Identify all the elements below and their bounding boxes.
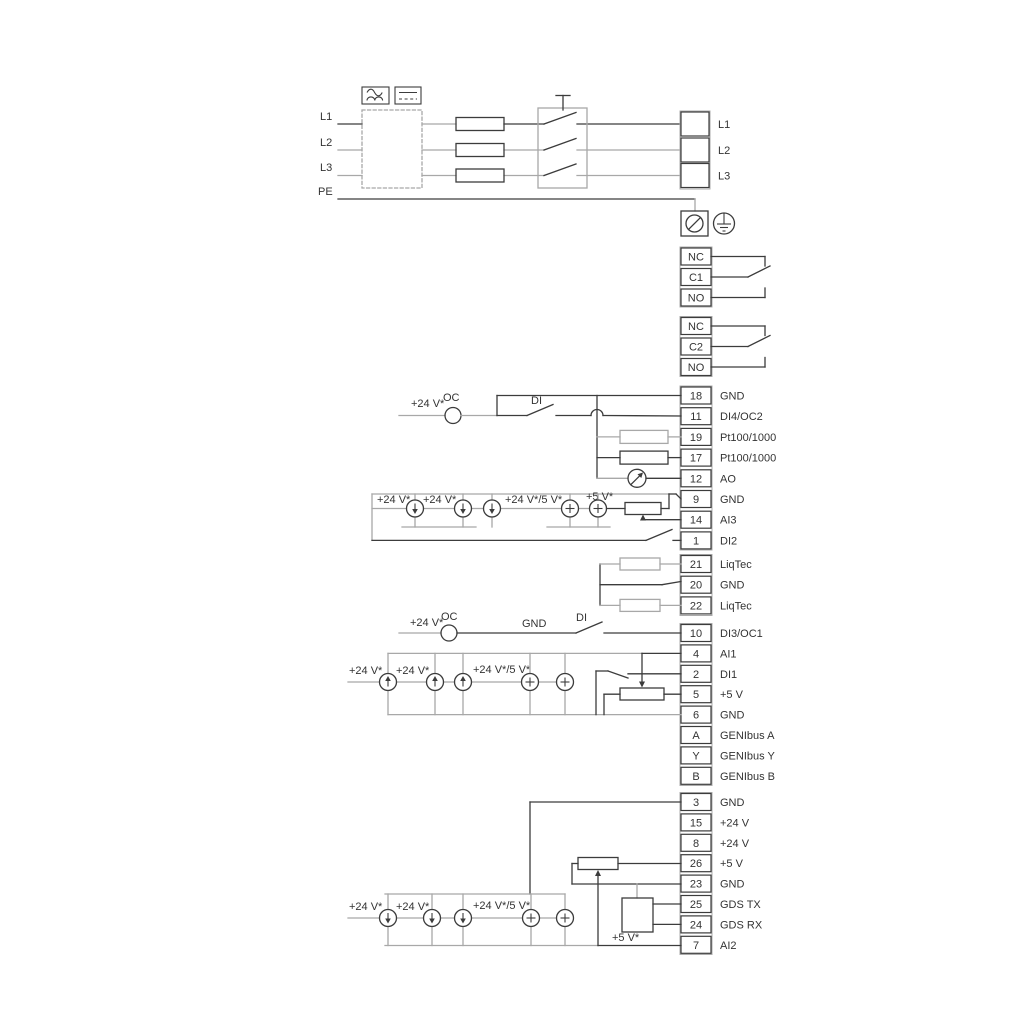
terminal-number: 5 xyxy=(693,689,699,701)
terminal-number: 14 xyxy=(690,515,702,527)
plus24or5-label: +24 V*/5 V* xyxy=(505,494,563,506)
terminal-label: AI3 xyxy=(720,515,737,527)
ai3-option-wiring: +24 V* +24 V* +24 V*/5 V* +5 V* xyxy=(372,491,681,540)
fuse-icon-l2 xyxy=(456,144,504,157)
analog-output-meter-icon xyxy=(597,469,681,487)
plus24-label: +24 V* xyxy=(410,617,444,629)
terminal-label: DI2 xyxy=(720,535,737,547)
relay1-nc: NC xyxy=(688,252,704,264)
relay2-c2: C2 xyxy=(689,342,703,354)
ai1-potentiometer-icon xyxy=(604,653,681,714)
terminal-number: 4 xyxy=(693,648,699,660)
current-source-icon xyxy=(455,894,472,946)
liqtec-sensor-icon xyxy=(600,599,681,611)
power-terminal-block: L1 L2 L3 xyxy=(680,111,730,189)
terminal-strip-io1: 18 11 19 17 12 9 14 1 GND DI4/OC2 Pt100/… xyxy=(680,386,776,550)
terminal-label: +24 V xyxy=(720,838,750,850)
relay1-c1: C1 xyxy=(689,272,703,284)
terminal-number: 8 xyxy=(693,838,699,850)
pt100-sensor-icon-19 xyxy=(597,430,681,443)
screw-terminal-icon xyxy=(681,211,708,236)
terminal-number: 2 xyxy=(693,669,699,681)
voltage-source-icon xyxy=(562,494,579,527)
terminal-strip-liqtec: 21 20 22 LiqTec GND LiqTec xyxy=(680,555,752,616)
plus24-label: +24 V* xyxy=(411,398,445,410)
oc-output-icon xyxy=(441,625,457,641)
terminal-number: 3 xyxy=(693,797,699,809)
voltage-source-icon xyxy=(557,894,574,946)
oc-label: OC xyxy=(441,611,458,623)
terminal-number: 18 xyxy=(690,391,702,403)
output-label-l2: L2 xyxy=(718,145,730,157)
plus24-label: +24 V* xyxy=(377,494,411,506)
terminal-strip-io2: 10 4 2 5 6 A Y B DI3/OC1 AI1 DI1 +5 V GN… xyxy=(680,624,775,786)
terminal-number: 7 xyxy=(693,940,699,952)
plus24-label: +24 V* xyxy=(349,665,383,677)
liqtec-sensor-wiring xyxy=(600,558,681,611)
terminal-number: 12 xyxy=(690,473,702,485)
terminal-number: 9 xyxy=(693,494,699,506)
di2-switch-icon xyxy=(372,530,681,541)
earth-ground-icon xyxy=(714,213,735,234)
converter-box xyxy=(362,110,422,188)
di-label: DI xyxy=(531,395,542,407)
terminal-label: +5 V xyxy=(720,689,744,701)
ac-symbol-icon xyxy=(362,87,389,104)
terminal-number: 1 xyxy=(693,535,699,547)
plus24-label: +24 V* xyxy=(396,901,430,913)
plus24-label: +24 V* xyxy=(349,901,383,913)
terminal-label: GND xyxy=(720,391,745,403)
current-source-icon xyxy=(455,653,472,714)
terminal-number: 24 xyxy=(690,919,702,931)
terminal-label: DI1 xyxy=(720,669,737,681)
wiring-diagram-canvas: L1 L2 L3 PE xyxy=(0,0,1024,1024)
voltage-source-icon xyxy=(557,653,574,714)
strip1-wiring: +24 V* OC DI xyxy=(399,392,681,487)
relay1-no: NO xyxy=(688,293,705,305)
terminal-label: GENIbus B xyxy=(720,771,775,783)
current-source-icon xyxy=(427,653,444,714)
terminal-number: 19 xyxy=(690,432,702,444)
terminal-label: GND xyxy=(720,494,745,506)
relay-2-contact-icon xyxy=(711,326,770,367)
terminal-label: GND xyxy=(720,580,745,592)
terminal-label: LiqTec xyxy=(720,559,752,571)
relay-2-block: NC C2 NO xyxy=(680,317,770,377)
dc-symbol-icon xyxy=(395,87,421,104)
terminal-label: +5 V xyxy=(720,858,744,870)
voltage-source-icon xyxy=(522,653,539,714)
plus24or5-label: +24 V*/5 V* xyxy=(473,900,531,912)
wiring-diagram: L1 L2 L3 PE xyxy=(0,0,1024,1024)
plus24or5-label: +24 V*/5 V* xyxy=(473,664,531,676)
liqtec-sensor-icon xyxy=(600,558,681,570)
terminal-label: GND xyxy=(720,797,745,809)
input-label-pe: PE xyxy=(318,186,333,198)
terminal-label: GENIbus Y xyxy=(720,750,775,762)
terminal-label: DI3/OC1 xyxy=(720,628,763,640)
terminal-label: GENIbus A xyxy=(720,730,775,742)
input-label-l1: L1 xyxy=(320,111,332,123)
input-label-l2: L2 xyxy=(320,137,332,149)
current-source-icon xyxy=(455,494,472,527)
terminal-number: 22 xyxy=(690,600,702,612)
terminal-label: Pt100/1000 xyxy=(720,432,776,444)
di1-switch-icon xyxy=(596,671,681,715)
terminal-number: 21 xyxy=(690,559,702,571)
ai3-potentiometer-icon xyxy=(625,494,681,521)
oc-label: OC xyxy=(443,392,460,404)
fuse-icon-l3 xyxy=(456,169,504,182)
terminal-label: DI4/OC2 xyxy=(720,411,763,423)
terminal-number: 17 xyxy=(690,453,702,465)
terminal-number: A xyxy=(692,730,700,742)
di3-wiring: +24 V* OC GND DI xyxy=(399,611,681,641)
relay-1-contact-icon xyxy=(711,257,770,298)
ai2-option-wiring: +24 V* +24 V* +24 V*/5 V* xyxy=(348,802,681,946)
input-label-l3: L3 xyxy=(320,162,332,174)
terminal-label: +24 V xyxy=(720,817,750,829)
fuse-icon-l1 xyxy=(456,118,504,131)
pt100-sensor-icon-17 xyxy=(597,451,681,464)
output-label-l3: L3 xyxy=(718,171,730,183)
terminal-label: AI2 xyxy=(720,940,737,952)
relay2-nc: NC xyxy=(688,321,704,333)
terminal-label: GDS RX xyxy=(720,919,763,931)
relay2-no: NO xyxy=(688,362,705,374)
disconnect-switch-icon xyxy=(538,96,587,189)
terminal-number: B xyxy=(692,771,699,783)
current-source-icon xyxy=(380,653,397,714)
gds-sensor-icon xyxy=(622,884,681,932)
pe-wire xyxy=(338,199,695,211)
terminal-number: 11 xyxy=(690,411,701,423)
di4-switch-icon xyxy=(497,405,681,417)
output-label-l1: L1 xyxy=(718,119,730,131)
terminal-label: Pt100/1000 xyxy=(720,453,776,465)
terminal-label: GND xyxy=(720,879,745,891)
current-source-icon xyxy=(484,494,501,527)
oc-output-icon xyxy=(445,408,461,424)
terminal-number: 20 xyxy=(690,580,702,592)
mains-power-section: L1 L2 L3 PE xyxy=(318,87,735,236)
terminal-label: GND xyxy=(720,710,745,722)
terminal-number: 10 xyxy=(690,628,702,640)
terminal-label: LiqTec xyxy=(720,600,752,612)
terminal-label: AO xyxy=(720,473,736,485)
terminal-label: GDS TX xyxy=(720,899,761,911)
di3-switch-icon xyxy=(576,622,681,633)
ai1-option-wiring: +24 V* +24 V* +24 V*/5 V* xyxy=(348,653,681,714)
di-label: DI xyxy=(576,612,587,624)
terminal-number: 23 xyxy=(690,879,702,891)
phase-wires xyxy=(338,124,681,176)
terminal-number: 26 xyxy=(690,858,702,870)
gnd-label: GND xyxy=(522,618,547,630)
relay-1-block: NC C1 NO xyxy=(680,247,770,307)
terminal-number: Y xyxy=(692,750,700,762)
terminal-number: 6 xyxy=(693,710,699,722)
terminal-strip-io3: 3 15 8 26 23 25 24 7 GND +24 V +24 V +5 … xyxy=(680,793,763,955)
terminal-number: 15 xyxy=(690,817,702,829)
terminal-label: AI1 xyxy=(720,648,737,660)
plus5-label: +5 V* xyxy=(586,491,614,503)
plus24-label: +24 V* xyxy=(396,665,430,677)
terminal-number: 25 xyxy=(690,899,702,911)
plus5-label: +5 V* xyxy=(612,932,640,944)
plus24-label: +24 V* xyxy=(423,494,457,506)
